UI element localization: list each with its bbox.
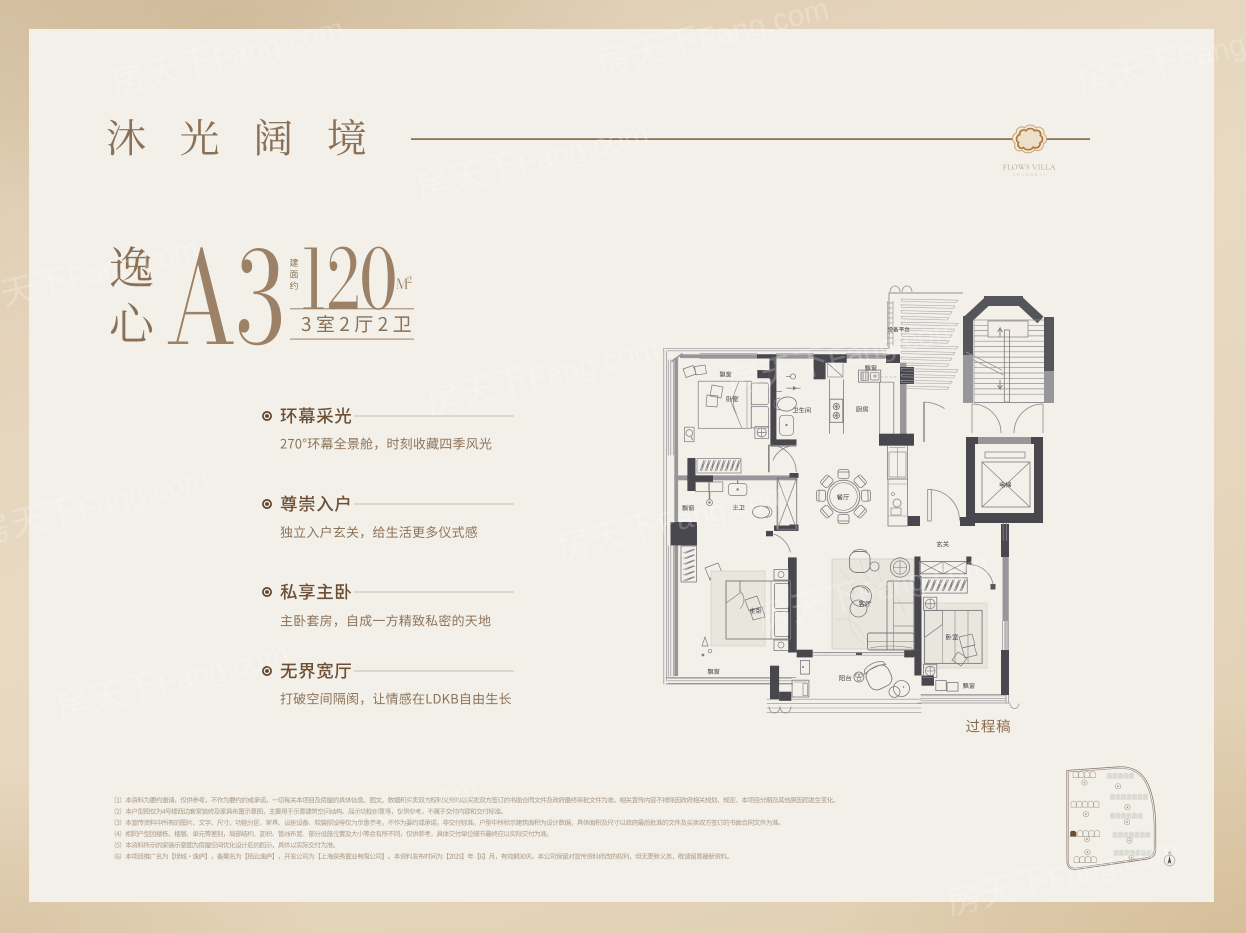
svg-text:Fang.com: Fang.com: [345, 772, 482, 836]
svg-text:Fang.com: Fang.com: [695, 0, 832, 57]
svg-text:Fang.com: Fang.com: [1175, 12, 1246, 76]
svg-text:Fang.com: Fang.com: [75, 462, 212, 526]
svg-text:Fang.com: Fang.com: [1045, 832, 1182, 896]
svg-text:Fang.com: Fang.com: [155, 637, 292, 701]
svg-text:Fang.com: Fang.com: [515, 117, 652, 181]
svg-text:Fang.com: Fang.com: [825, 312, 962, 376]
svg-text:Fang.com: Fang.com: [210, 12, 347, 76]
svg-text:Fang.com: Fang.com: [65, 232, 202, 296]
svg-text:Fang.com: Fang.com: [525, 332, 662, 396]
